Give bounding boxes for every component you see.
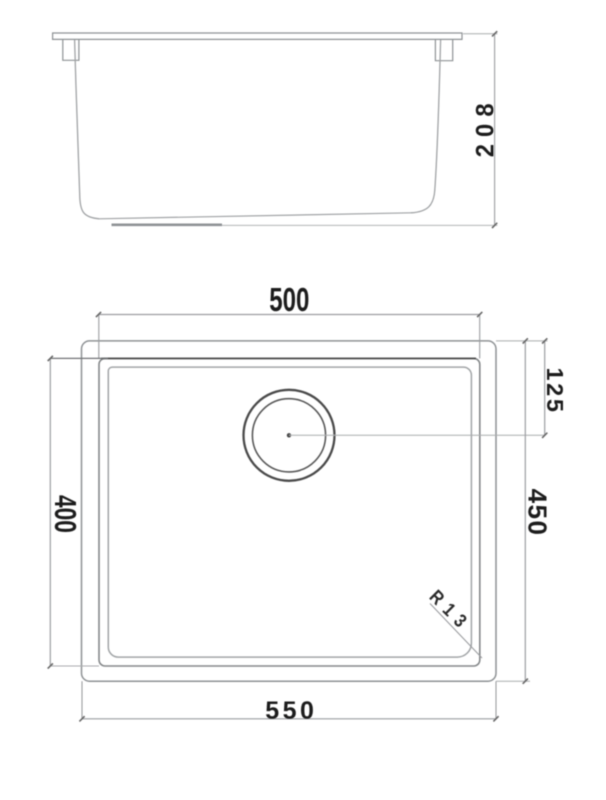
- svg-text:400: 400: [48, 495, 82, 533]
- svg-text:450: 450: [523, 489, 553, 537]
- svg-text:208: 208: [472, 96, 500, 157]
- svg-text:550: 550: [265, 697, 317, 725]
- svg-text:125: 125: [542, 367, 568, 414]
- svg-text:500: 500: [269, 282, 309, 319]
